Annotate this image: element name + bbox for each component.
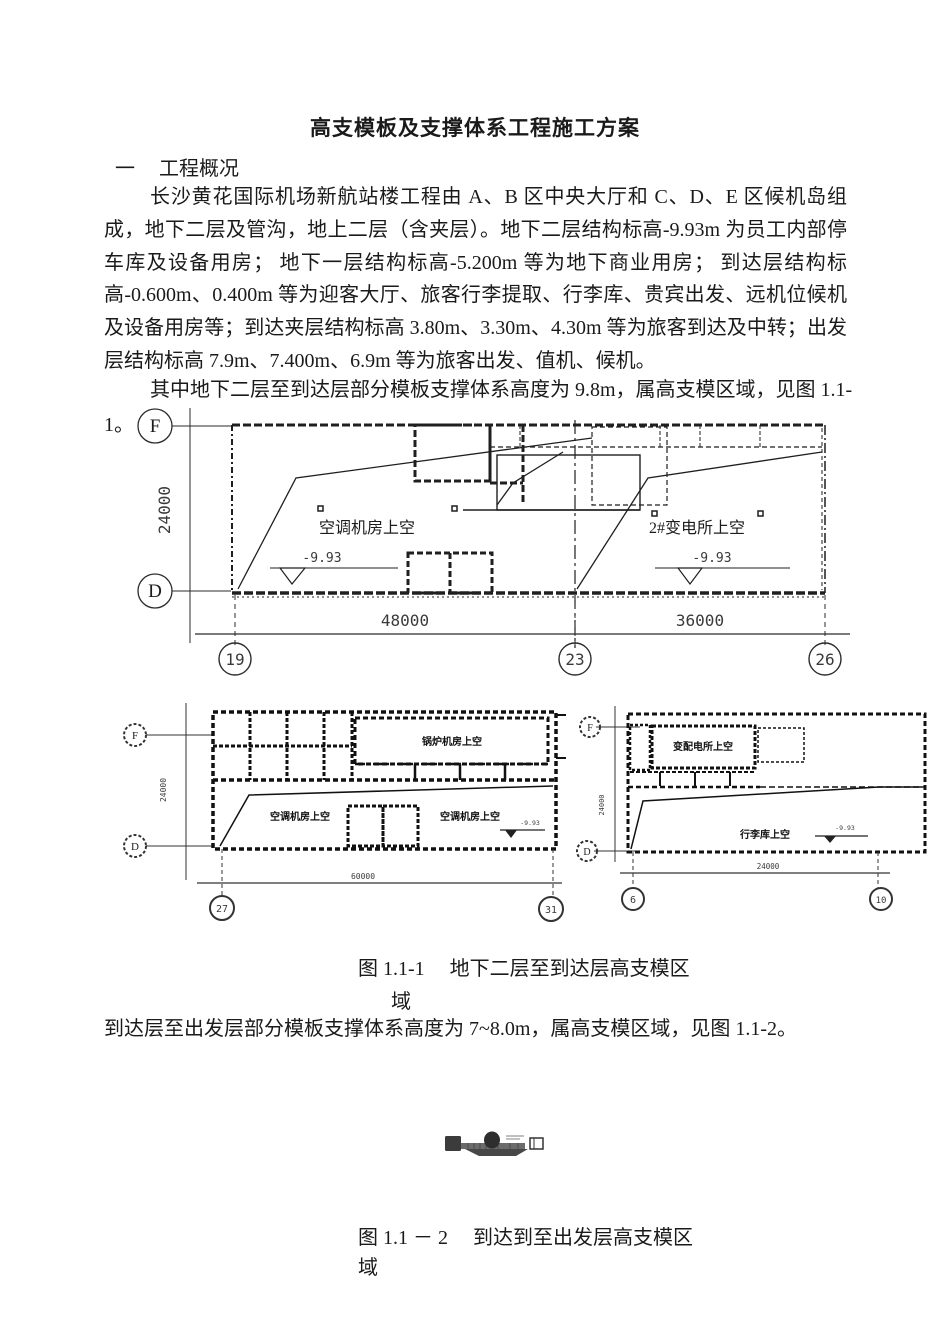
main-dim-48000: 48000 [381, 611, 429, 630]
right-row-bubble-F: F [587, 723, 593, 734]
right-col-bubble-10: 10 [876, 896, 887, 906]
left-dim-span: 60000 [351, 872, 375, 881]
main-row-bubble-F: F [150, 416, 161, 437]
sketch-shapes [445, 1132, 543, 1157]
right-elevation-mark: -9.93 [815, 824, 868, 843]
main-dim-36000: 36000 [676, 611, 724, 630]
left-room-top-label: 锅炉机房上空 [422, 735, 482, 748]
main-plan-grid-axes [138, 408, 231, 643]
figure-1-1-2-thumbnail-sketch [430, 1125, 550, 1165]
section-heading: 一工程概况 [115, 152, 239, 181]
main-col-bubble-26: 26 [815, 650, 834, 669]
right-room-top-label: 变配电所上空 [673, 740, 733, 753]
main-room-right-label: 2#变电所上空 [649, 519, 745, 537]
left-col-bubble-27: 27 [216, 904, 228, 915]
left-elevation-mark: -9.93 [500, 819, 545, 838]
left-row-bubble-D: D [131, 841, 139, 853]
figure-1-1-1-main-plan: F D 24000 [0, 398, 950, 690]
left-dimension-lines [197, 849, 563, 921]
right-dim-vertical: 24000 [598, 794, 606, 815]
paragraph-highmold-2: 到达层至出发层部分模板支撑体系高度为 7~8.0m，属高支模区域，见图 1.1-… [104, 1012, 924, 1041]
figure-1-1-1-small-plans: F D 24000 锅炉机房上空 空调机房上空 空调机房上空 -9.93 [0, 690, 950, 930]
right-room-bottom-label: 行李库上空 [739, 828, 790, 841]
left-room-bottom-right-label: 空调机房上空 [440, 810, 500, 823]
svg-text:-9.93: -9.93 [835, 824, 855, 832]
main-dim-vertical: 24000 [155, 486, 174, 534]
left-plan-walls [213, 712, 566, 849]
svg-text:-9.93: -9.93 [692, 551, 731, 566]
left-room-bottom-left-label: 空调机房上空 [270, 810, 330, 823]
section-title: 工程概况 [159, 158, 239, 180]
main-col-bubble-19: 19 [225, 650, 244, 669]
left-row-bubble-F: F [132, 730, 138, 742]
figure1-caption-line2: 域 [391, 985, 411, 1014]
main-elevation-left: -9.93 [270, 551, 398, 584]
svg-text:-9.93: -9.93 [302, 551, 341, 566]
paragraph-overview: 长沙黄花国际机场新航站楼工程由 A、B 区中央大厅和 C、D、E 区候机岛组成，… [104, 181, 847, 378]
right-row-bubble-D: D [583, 847, 590, 858]
main-room-left-label: 空调机房上空 [319, 519, 415, 537]
right-dimension-lines [620, 852, 892, 910]
right-col-bubble-6: 6 [630, 895, 636, 906]
main-col-bubble-23: 23 [565, 650, 584, 669]
section-number: 一 [115, 158, 135, 180]
left-dim-vertical: 24000 [159, 778, 168, 802]
left-col-bubble-31: 31 [545, 905, 557, 916]
main-row-bubble-D: D [148, 581, 162, 602]
figure2-caption-line2: 域 [358, 1251, 378, 1280]
figure2-caption-line1: 图 1.1 － 2 到达到至出发层高支模区 [358, 1221, 693, 1250]
document-page: 高支模板及支撑体系工程施工方案 一工程概况 长沙黄花国际机场新航站楼工程由 A、… [0, 0, 950, 1344]
right-dim-span: 24000 [757, 862, 780, 871]
document-title: 高支模板及支撑体系工程施工方案 [0, 112, 950, 142]
main-elevation-right: -9.93 [655, 551, 790, 584]
figure1-caption-line1: 图 1.1-1 地下二层至到达层高支模区 [358, 952, 690, 981]
svg-text:-9.93: -9.93 [520, 819, 540, 827]
main-dimension-lines [195, 595, 850, 675]
